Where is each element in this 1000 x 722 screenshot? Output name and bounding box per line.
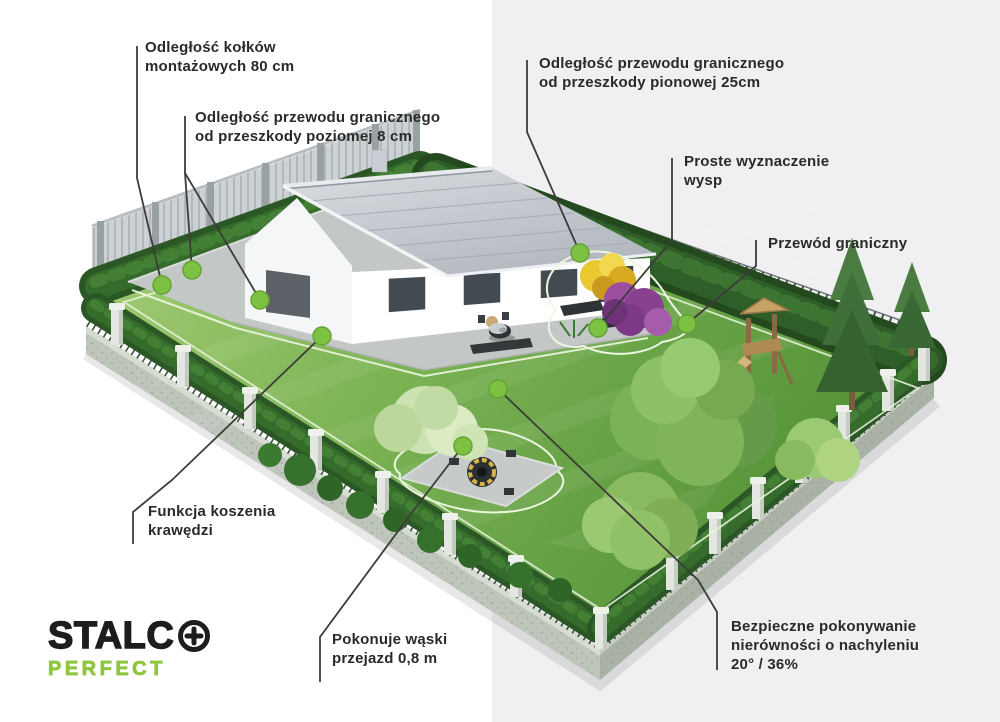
connection-dot	[153, 276, 171, 294]
connection-dot	[678, 315, 696, 333]
callout-text-line: 20° / 36%	[731, 655, 919, 674]
callout-wire-horizontal-obstacle: Odległość przewodu granicznego od przesz…	[195, 108, 440, 146]
callout-text-line: od przeszkody pionowej 25cm	[539, 73, 784, 92]
callout-wire-vertical-obstacle: Odległość przewodu granicznego od przesz…	[539, 54, 784, 92]
connection-dot	[454, 437, 472, 455]
connection-dot	[489, 380, 507, 398]
callout-text-line: Pokonuje wąski	[332, 630, 447, 649]
callout-boundary-wire: Przewód graniczny	[768, 234, 907, 253]
callout-edge-mowing: Funkcja koszenia krawędzi	[148, 502, 275, 540]
garden-scene-illustration	[0, 0, 1000, 722]
logo-subbrand-text: PERFECT	[48, 658, 211, 680]
callout-text-line: nierówności o nachyleniu	[731, 636, 919, 655]
callout-text-line: Bezpieczne pokonywanie	[731, 617, 919, 636]
circled-plus-icon	[177, 619, 211, 653]
connection-dot	[251, 291, 269, 309]
chimney	[372, 150, 387, 172]
callout-narrow-passage: Pokonuje wąski przejazd 0,8 m	[332, 630, 447, 668]
callout-text-line: od przeszkody poziomej 8 cm	[195, 127, 440, 146]
callout-text-line: Odległość przewodu granicznego	[539, 54, 784, 73]
callout-text-line: Przewód graniczny	[768, 234, 907, 253]
callout-text-line: przejazd 0,8 m	[332, 649, 447, 668]
logo-brand-text: STALC	[48, 616, 174, 656]
connection-dot	[183, 261, 201, 279]
callout-text-line: krawędzi	[148, 521, 275, 540]
infographic: Odległość kołków montażowych 80 cm Odleg…	[0, 0, 1000, 722]
callout-peg-distance: Odległość kołków montażowych 80 cm	[145, 38, 294, 76]
garage-door	[266, 270, 310, 318]
callout-text-line: montażowych 80 cm	[145, 57, 294, 76]
connection-dot	[589, 319, 607, 337]
callout-island-marking: Proste wyznaczenie wysp	[684, 152, 829, 190]
connection-dot	[571, 244, 589, 262]
callout-text-line: Odległość przewodu granicznego	[195, 108, 440, 127]
callout-text-line: Proste wyznaczenie	[684, 152, 829, 171]
callout-text-line: wysp	[684, 171, 829, 190]
callout-text-line: Funkcja koszenia	[148, 502, 275, 521]
callout-text-line: Odległość kołków	[145, 38, 294, 57]
stalco-perfect-logo: STALC PERFECT	[48, 616, 211, 680]
callout-slope-handling: Bezpieczne pokonywanie nierówności o nac…	[731, 617, 919, 674]
connection-dot	[313, 327, 331, 345]
